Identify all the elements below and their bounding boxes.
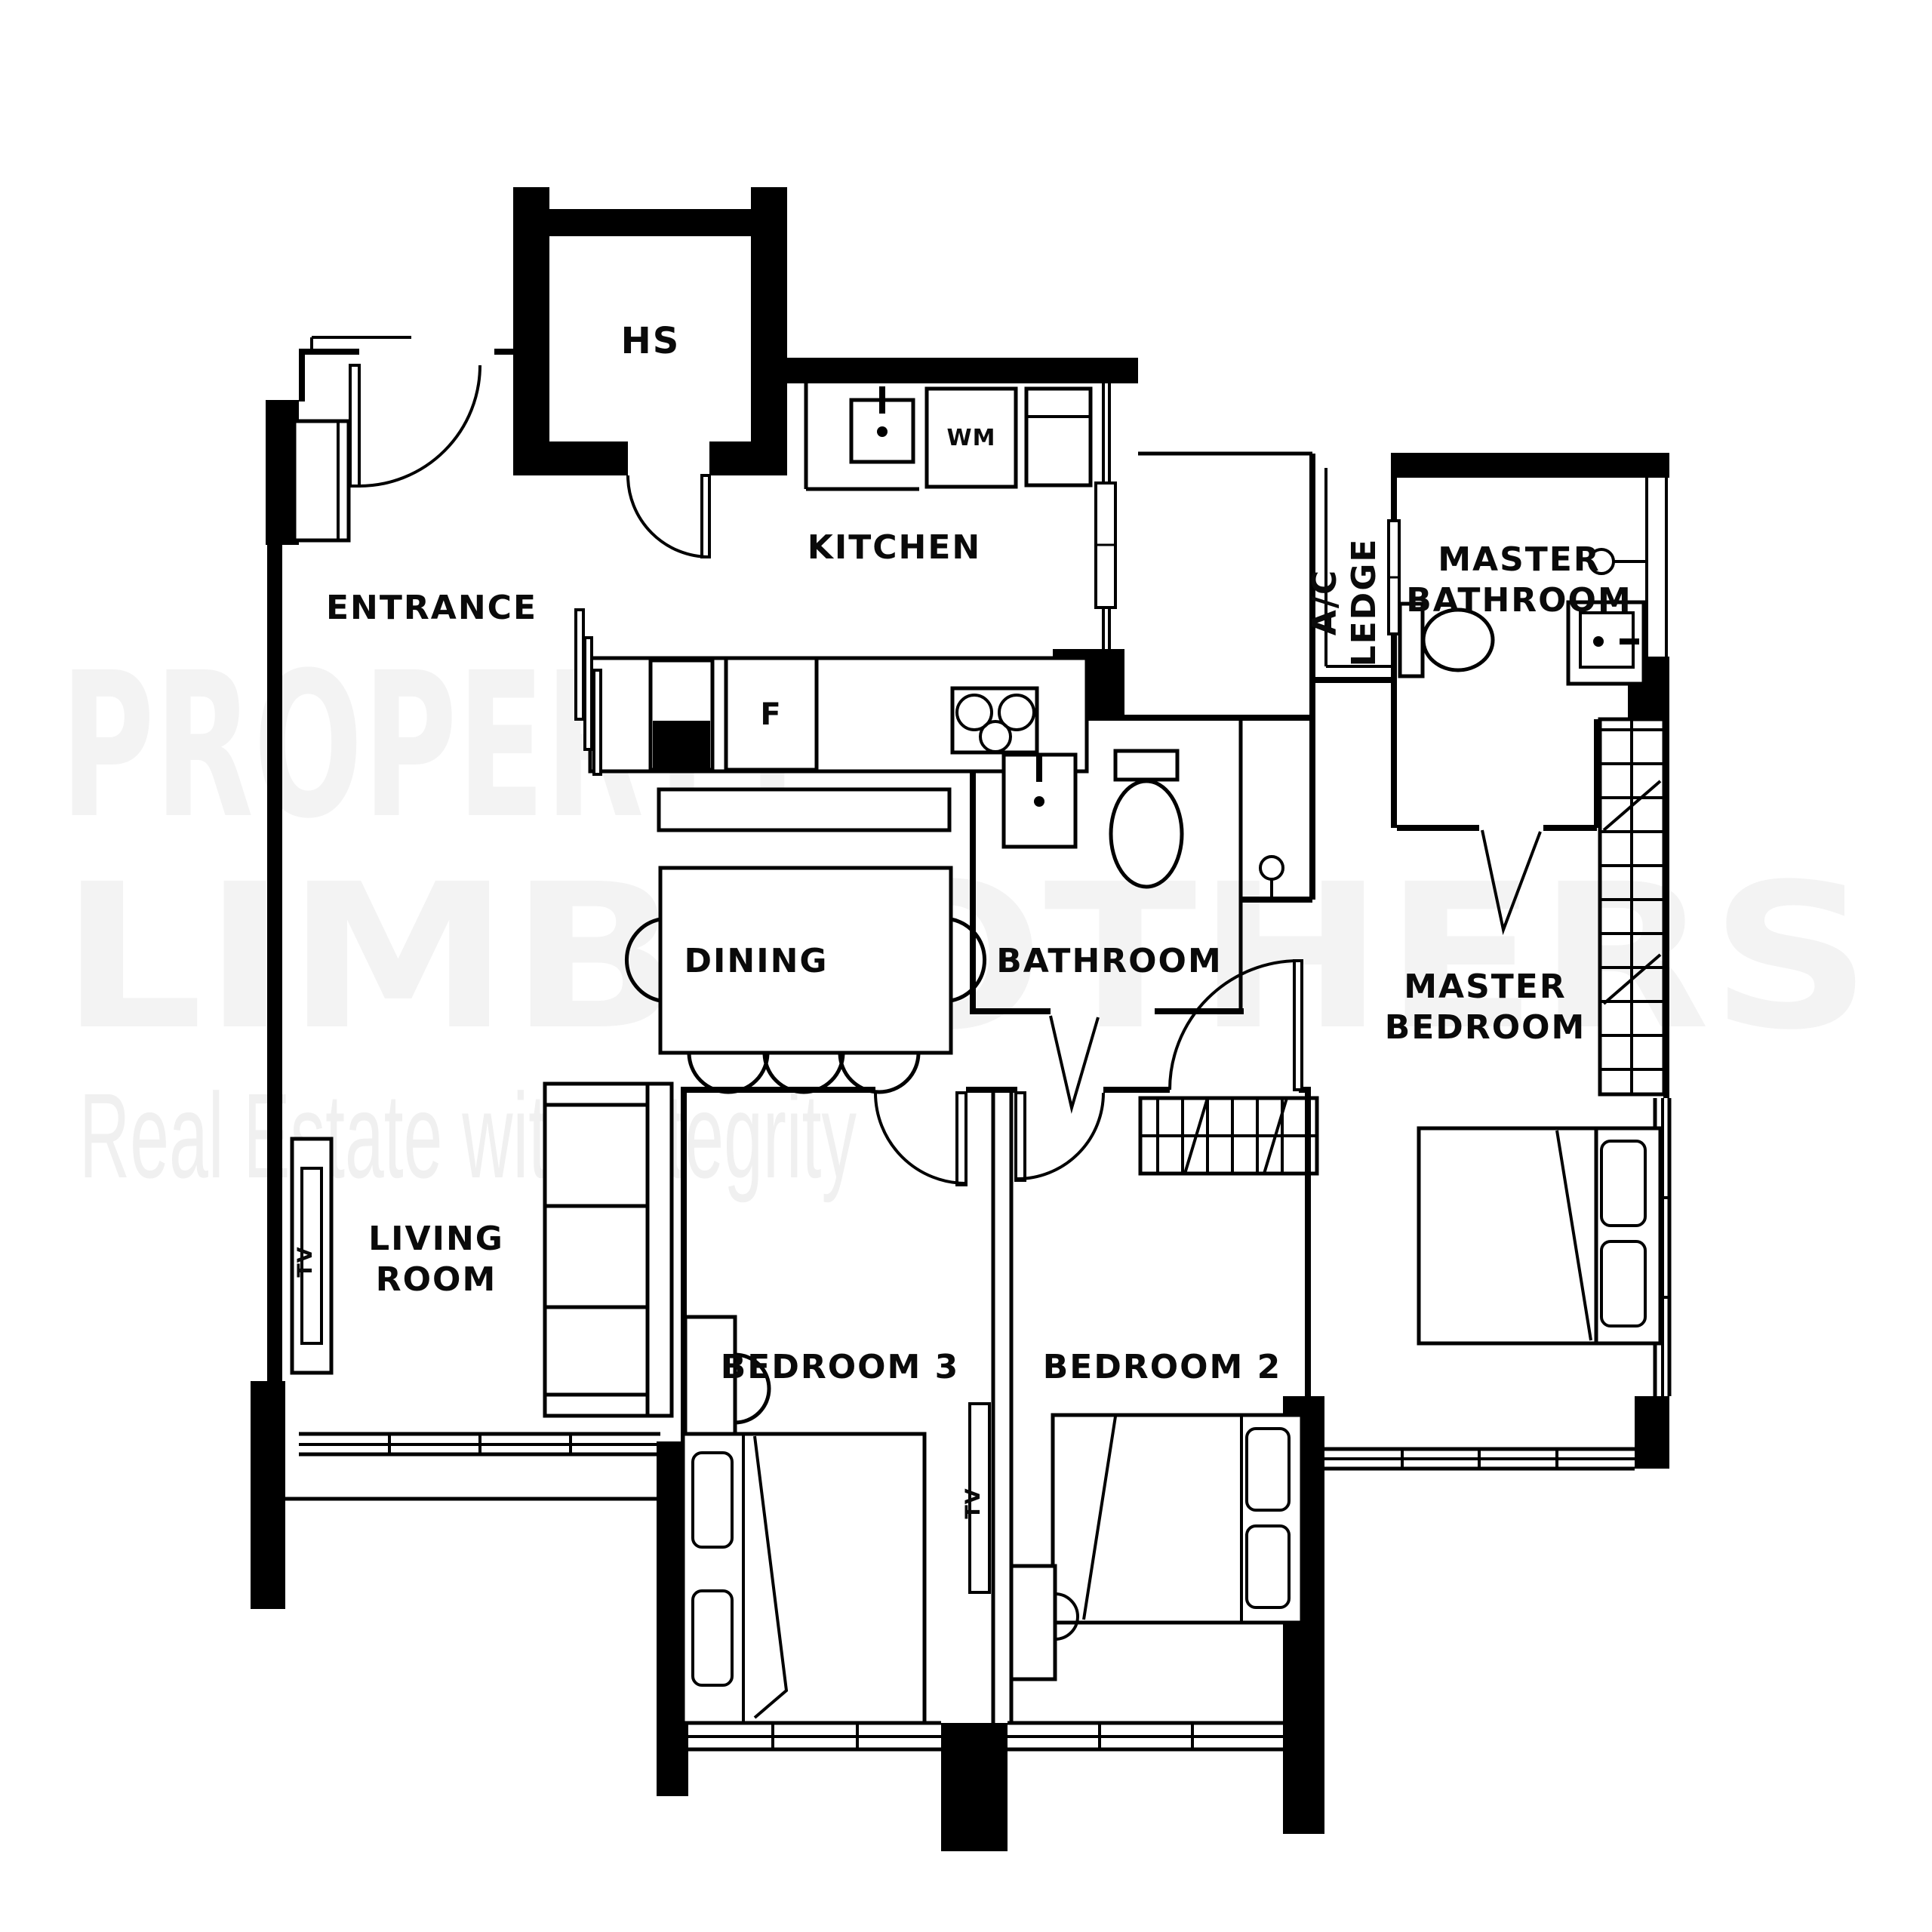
kitchen-shelf-panel <box>585 638 592 749</box>
label-living-room-2: ROOM <box>376 1260 497 1299</box>
label-kitchen: KITCHEN <box>808 528 981 567</box>
label-living-room-1: LIVING <box>368 1220 504 1258</box>
wall-window-pillar <box>941 1723 1008 1851</box>
label-bedroom2: BEDROOM 2 <box>1043 1348 1282 1386</box>
pillow-icon <box>1247 1526 1289 1607</box>
bedroom3-door-leaf <box>957 1093 966 1185</box>
kitchen-unit-tall-base <box>653 721 710 768</box>
pillow-icon <box>693 1591 732 1685</box>
entrance-furniture <box>294 421 349 540</box>
floorplan-svg: PROPERTY LIMBROTHERS Real Estate with In… <box>0 0 1932 1932</box>
kitchen-shelf-panel <box>594 670 601 774</box>
label-bedroom3: BEDROOM 3 <box>721 1348 960 1386</box>
wall-left-strip <box>267 545 282 1381</box>
bedroom3-door-arc <box>875 1093 966 1183</box>
pillow-icon <box>1601 1141 1645 1226</box>
label-master-bathroom-2: BATHROOM <box>1406 581 1632 620</box>
bedroom2-door-arc <box>1017 1093 1103 1179</box>
floorplan-page: PROPERTY LIMBROTHERS Real Estate with In… <box>0 0 1932 1932</box>
label-ac-ledge-1: A/C <box>1306 569 1344 635</box>
dining-console <box>659 789 949 830</box>
window-masterbath-left <box>1389 521 1399 634</box>
kitchen-shelf-panel <box>576 610 583 719</box>
pillow-icon <box>1247 1429 1289 1510</box>
window-kitchen-right <box>1096 483 1115 608</box>
label-tv-bedroom: TV <box>961 1487 985 1518</box>
entrance-door-arc <box>359 365 480 486</box>
window-bedroom3-bottom <box>688 1723 941 1749</box>
kitchen-cabinet-unit <box>1026 389 1091 485</box>
label-master-bedroom-1: MASTER <box>1404 968 1566 1006</box>
bedroom2-door-leaf <box>1016 1093 1025 1180</box>
label-fridge: F <box>760 697 782 732</box>
bathroom-sink-drain-icon <box>1034 796 1044 807</box>
master-sink-drain-icon <box>1593 636 1604 647</box>
wall-master-se-pillar <box>1635 1396 1669 1469</box>
window-master-bottom <box>1324 1449 1635 1469</box>
master-bedroom-door-leaf <box>1294 961 1302 1090</box>
label-hs: HS <box>621 320 681 362</box>
master-bed-icon <box>1419 1128 1596 1343</box>
kitchen-fixtures <box>576 383 1091 774</box>
toilet-bowl-icon <box>1111 781 1182 887</box>
wall-hs-bottom-left <box>513 441 628 475</box>
kitchen-sink-drain-icon <box>877 426 888 437</box>
entrance-door-leaf <box>350 365 359 486</box>
toilet-tank-icon <box>1115 751 1177 780</box>
label-master-bedroom-2: BEDROOM <box>1385 1008 1586 1047</box>
label-entrance: ENTRANCE <box>326 589 537 627</box>
window-living-bottom <box>299 1434 660 1454</box>
hs-door-leaf <box>702 475 709 557</box>
label-dining: DINING <box>684 942 828 980</box>
wall-hs-top <box>513 209 787 236</box>
wall-kitchen-top <box>787 358 1138 383</box>
label-bathroom: BATHROOM <box>996 942 1223 980</box>
label-master-bathroom-1: MASTER <box>1438 540 1600 579</box>
bedroom2-bedside-table <box>1011 1566 1055 1679</box>
sofa-icon <box>545 1084 672 1416</box>
hs-door-arc <box>628 475 709 557</box>
label-washing-machine: WM <box>947 425 996 451</box>
window-bedroom2-bottom <box>1008 1723 1283 1749</box>
shoe-cabinet <box>294 421 349 540</box>
wall-left-lower <box>251 1381 285 1609</box>
bedroom-furniture <box>683 1128 1660 1723</box>
wall-masterbath-top <box>1391 453 1669 478</box>
label-tv-living: TV <box>294 1246 317 1277</box>
wall-hs-bottom-right <box>709 441 787 475</box>
pillow-icon <box>1601 1241 1645 1326</box>
label-ac-ledge-2: LEDGE <box>1345 538 1383 667</box>
pillow-icon <box>693 1453 732 1547</box>
